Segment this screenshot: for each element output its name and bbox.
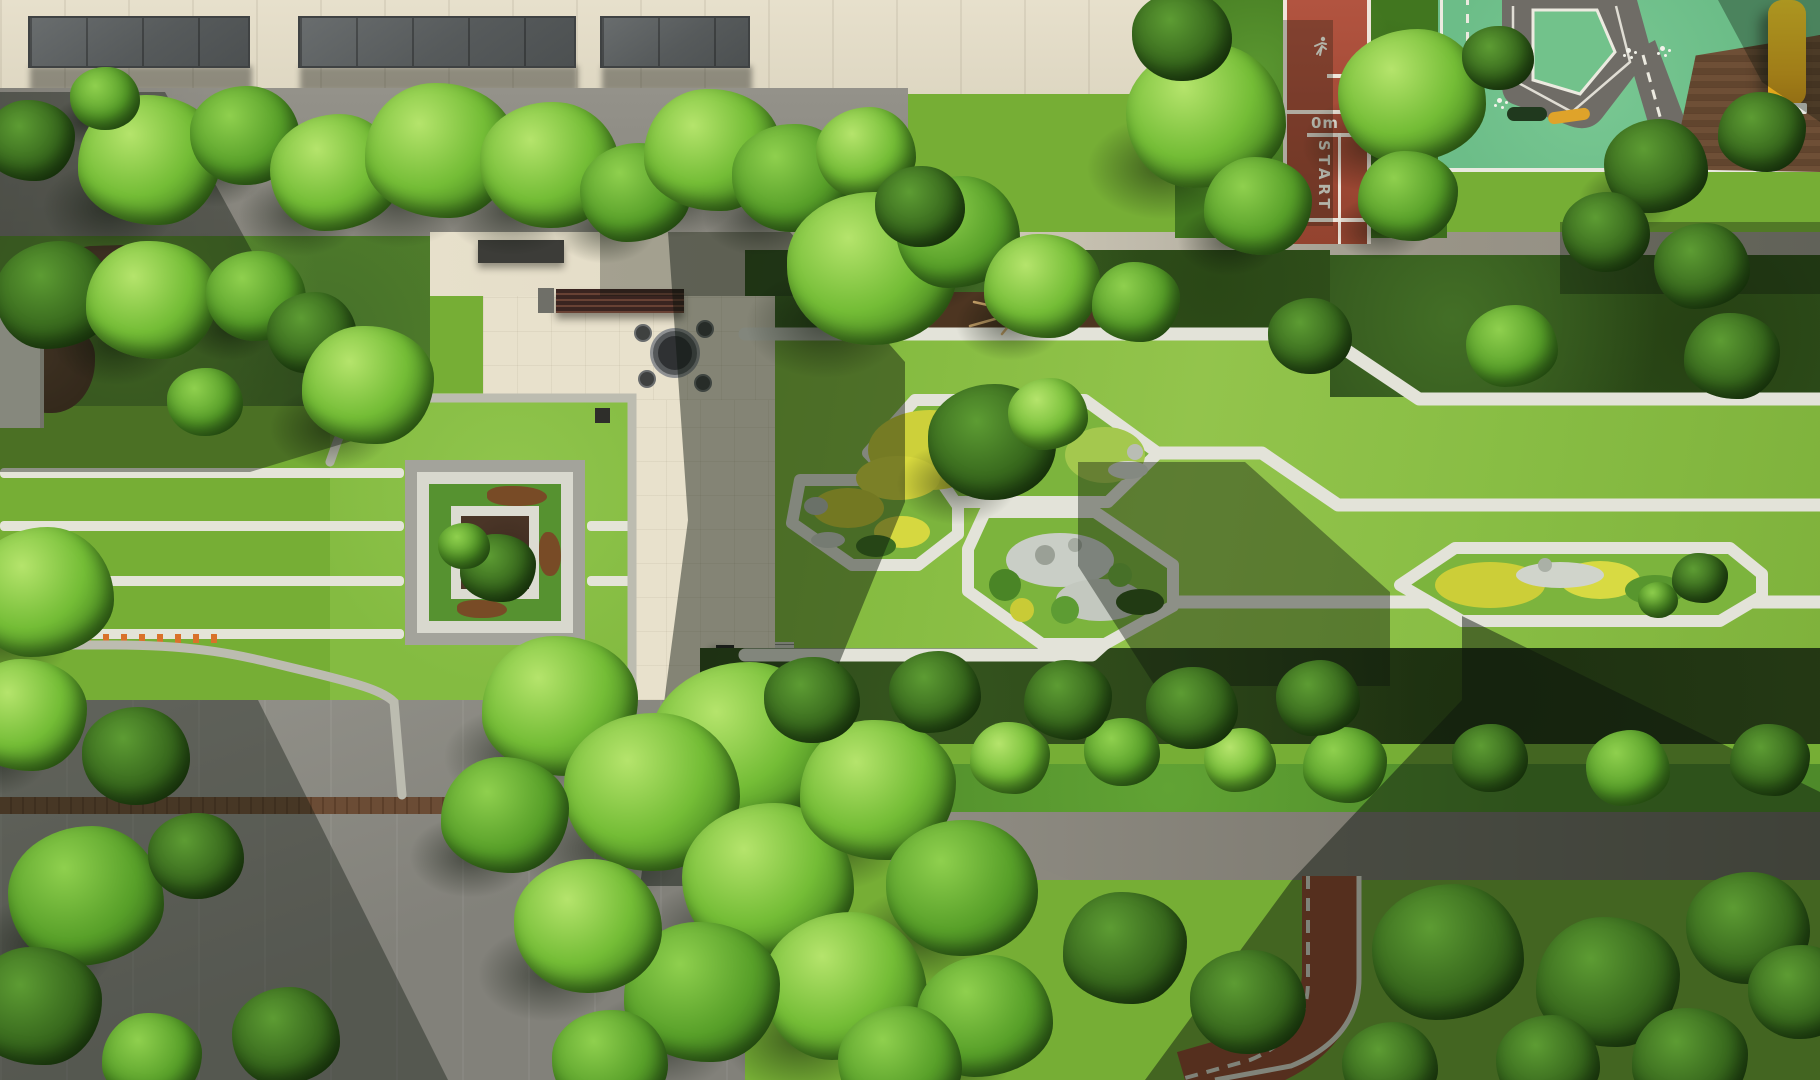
tree (1730, 724, 1810, 796)
tree (8, 826, 164, 966)
tree (1452, 724, 1528, 792)
tree (1586, 730, 1670, 806)
tree (0, 659, 87, 771)
tree (1638, 582, 1678, 618)
tree (875, 166, 965, 247)
tree (1204, 157, 1312, 254)
tree (1466, 305, 1558, 388)
tree (1132, 0, 1232, 81)
tree (302, 326, 434, 445)
tree (1562, 192, 1650, 271)
tree (1654, 223, 1750, 309)
tree (86, 241, 218, 360)
tree (1718, 92, 1806, 171)
tree (438, 523, 490, 570)
tree (1358, 151, 1458, 241)
tree (441, 757, 569, 872)
tree (1276, 660, 1360, 736)
aerial-landscape-photo: 0m START (0, 0, 1820, 1080)
tree (1684, 313, 1780, 399)
tree (70, 67, 140, 130)
tree (0, 100, 75, 181)
tree (1146, 667, 1238, 750)
tree (764, 657, 860, 743)
tree (1008, 378, 1088, 450)
tree (1462, 26, 1534, 91)
tree (886, 820, 1038, 957)
tree (82, 707, 190, 804)
tree (148, 813, 244, 899)
tree (167, 368, 243, 436)
tree (970, 722, 1050, 794)
tree (232, 987, 340, 1080)
tree (984, 234, 1100, 338)
tree (1672, 553, 1728, 603)
tree (1342, 1022, 1438, 1080)
tree (1024, 660, 1112, 739)
tree (0, 527, 114, 657)
tree (1372, 884, 1524, 1021)
tree (1190, 950, 1306, 1054)
tree (889, 651, 981, 734)
tree (1063, 892, 1187, 1004)
tree (1092, 262, 1180, 341)
tree (1268, 298, 1352, 374)
tree-layer (0, 0, 1820, 1080)
tree (514, 859, 662, 992)
tree (102, 1013, 202, 1080)
tree (1303, 727, 1387, 803)
